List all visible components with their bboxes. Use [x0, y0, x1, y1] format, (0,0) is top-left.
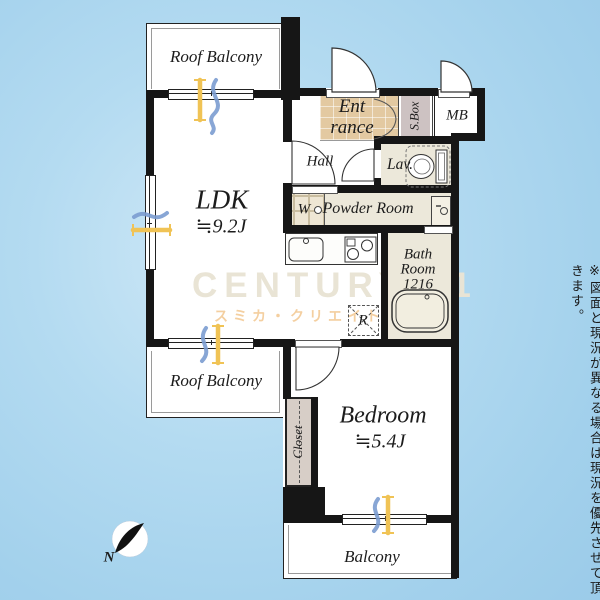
- window-ldk-top: [168, 89, 254, 100]
- bedroom-door-sill: [295, 340, 342, 348]
- washer-label: W: [298, 202, 311, 219]
- wall: [283, 345, 291, 399]
- wall: [374, 178, 381, 192]
- refrigerator-label: R: [358, 313, 367, 330]
- meter-box-label: MB: [446, 108, 468, 125]
- ldk-label: LDK: [196, 185, 249, 216]
- disclaimer-note: ※図面と現況が異なる場合は現況を優先させて頂きます。: [566, 264, 600, 600]
- wall: [455, 133, 485, 141]
- powder-room-label: Powder Room: [322, 200, 413, 218]
- bath-label-line3: 1216: [403, 277, 433, 293]
- entrance-door-arc-icon: [332, 48, 376, 92]
- roof-balcony-mid-label: Roof Balcony: [170, 371, 262, 391]
- bath-door-sill: [424, 226, 453, 234]
- compass-north-label: N: [104, 550, 115, 567]
- bath-room-label: Bath Room 1216: [401, 248, 436, 293]
- wall: [340, 339, 459, 347]
- lavatory-label: Lav.: [387, 156, 413, 174]
- vanity-sink: [431, 196, 451, 227]
- bedroom-size-label: ≒5.4J: [355, 429, 406, 454]
- wall: [425, 515, 459, 523]
- closet-label: Closet: [290, 425, 306, 458]
- roof-balcony-top-label: Roof Balcony: [170, 47, 262, 67]
- window-bedroom: [342, 514, 427, 525]
- floor-plan: CENTURY 21 スミカ・クリエイト: [0, 0, 600, 600]
- bedroom-label: Bedroom: [339, 403, 426, 430]
- wall: [293, 88, 326, 96]
- bath-label-line2: Room: [401, 262, 436, 278]
- powder-sliding-door: [292, 186, 338, 194]
- mb-door-sill: [438, 89, 470, 98]
- kitchen-counter: [285, 233, 378, 265]
- wall: [374, 136, 381, 150]
- ldk-size-label: ≒9.2J: [196, 214, 247, 239]
- window-ldk-bottom: [168, 338, 254, 349]
- wall: [283, 98, 292, 142]
- compass-icon: [112, 521, 148, 557]
- balcony-label: Balcony: [344, 547, 400, 567]
- shoe-box-label: S.Box: [408, 102, 423, 131]
- wall: [311, 397, 318, 487]
- wall: [374, 136, 459, 144]
- hall-label: Hall: [307, 154, 334, 171]
- wall: [283, 487, 325, 523]
- wall: [325, 515, 342, 523]
- bath-label-line1: Bath: [404, 247, 432, 263]
- wall: [451, 133, 459, 578]
- entrance-label: Ent rance: [330, 96, 373, 138]
- entrance-label-line1: Ent: [339, 96, 365, 117]
- window-ldk-left: [145, 175, 156, 270]
- wall: [381, 233, 388, 347]
- entrance-label-line2: rance: [330, 117, 373, 138]
- wall: [378, 88, 438, 96]
